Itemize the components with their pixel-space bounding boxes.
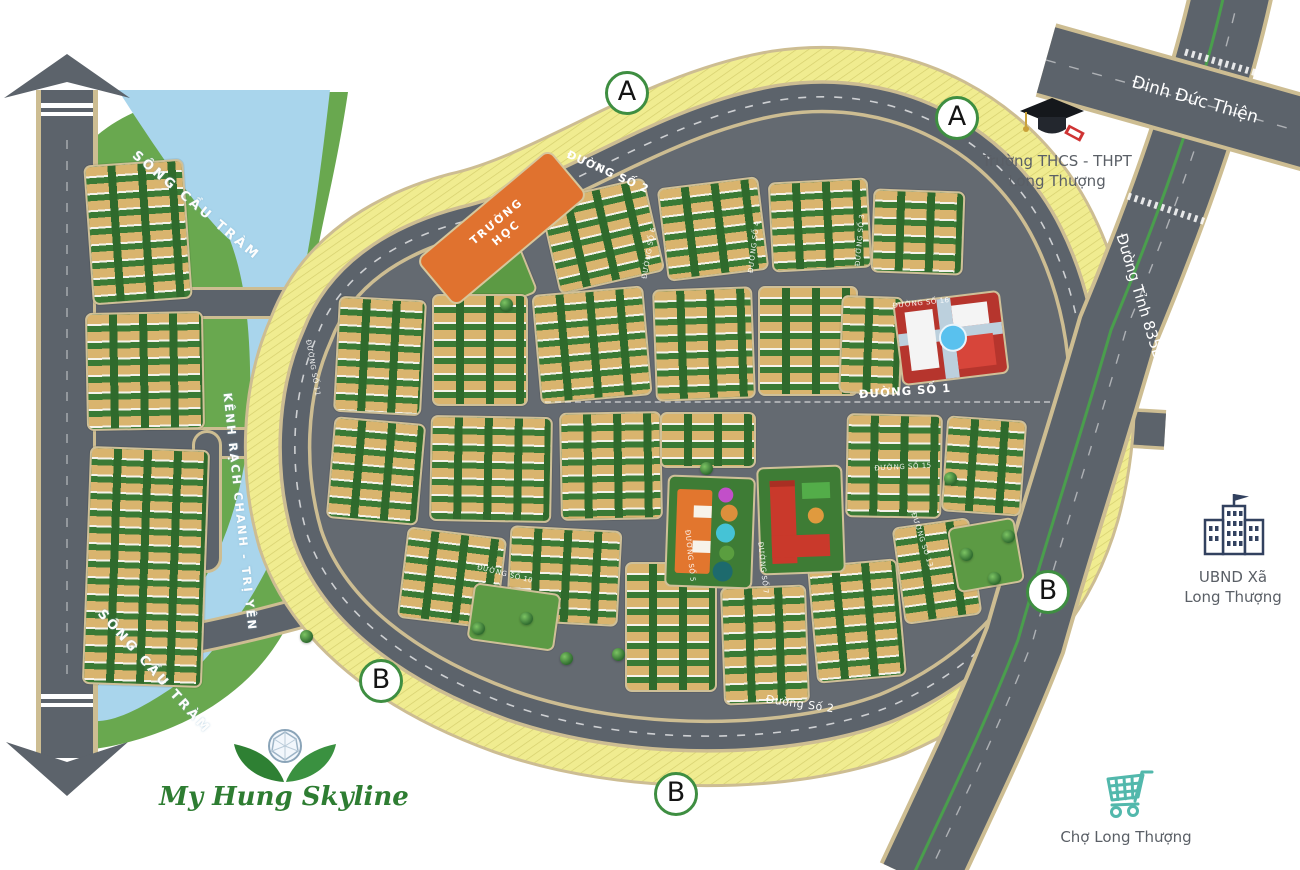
housing-block xyxy=(652,286,756,401)
school-caption: Trường THCS - THPT Long Thượng xyxy=(982,152,1132,191)
green-park-block xyxy=(947,517,1025,594)
tree-icon xyxy=(612,648,625,661)
housing-block xyxy=(429,415,553,523)
tree-icon xyxy=(520,612,533,625)
lotus-logo-icon xyxy=(226,722,344,784)
playground-dot xyxy=(719,545,735,561)
zone-marker-a: A xyxy=(935,96,979,140)
tree-icon xyxy=(560,652,573,665)
playground-dot xyxy=(716,524,736,544)
community-building-l xyxy=(756,465,846,576)
tree-icon xyxy=(944,472,957,485)
housing-block xyxy=(559,411,663,521)
housing-block xyxy=(720,585,810,706)
housing-block xyxy=(871,188,966,275)
ubnd-caption-line2: Long Thượng xyxy=(1184,588,1281,608)
map-canvas: TRƯỜNG HỌC Đinh Đức Thiện Đường Tỉnh 835… xyxy=(0,0,1300,870)
tree-icon xyxy=(1002,530,1015,543)
market-caption-text: Chợ Long Thượng xyxy=(1060,828,1191,848)
housing-block xyxy=(432,294,528,406)
shopping-cart-icon xyxy=(1094,766,1158,822)
tree-icon xyxy=(988,572,1001,585)
tree-icon xyxy=(300,630,313,643)
housing-block xyxy=(660,412,756,468)
playground-dot xyxy=(718,487,734,503)
green-roof xyxy=(801,482,829,500)
playground-dot xyxy=(720,504,738,522)
school-caption-line2: Long Thượng xyxy=(982,172,1132,192)
developer-logo-text: My Hung Skyline xyxy=(159,782,409,812)
playground-dot xyxy=(712,561,733,582)
orange-dot xyxy=(807,507,824,524)
school-caption-line1: Trường THCS - THPT xyxy=(982,152,1132,172)
market-caption: Chợ Long Thượng xyxy=(1060,828,1191,848)
housing-block xyxy=(531,285,652,404)
ubnd-building-icon xyxy=(1196,488,1272,560)
housing-block xyxy=(85,311,205,431)
l-building-wing xyxy=(772,534,830,559)
building-notch xyxy=(694,506,712,518)
housing-block xyxy=(326,416,427,526)
housing-block xyxy=(807,558,907,683)
zone-marker-a: A xyxy=(605,71,649,115)
housing-block xyxy=(333,296,427,416)
graduation-cap-icon xyxy=(1018,96,1090,148)
tree-icon xyxy=(700,462,713,475)
zone-marker-b: B xyxy=(359,659,403,703)
tree-icon xyxy=(472,622,485,635)
ubnd-caption-line1: UBND Xã xyxy=(1184,568,1281,588)
housing-block xyxy=(941,415,1028,516)
zone-marker-b: B xyxy=(654,772,698,816)
kindergarten-block xyxy=(664,474,756,589)
building-notch xyxy=(692,540,710,552)
ubnd-caption: UBND Xã Long Thượng xyxy=(1184,568,1281,607)
green-park-block xyxy=(466,582,561,652)
zone-marker-b: B xyxy=(1026,570,1070,614)
tree-icon xyxy=(960,548,973,561)
tree-icon xyxy=(500,298,513,311)
street-centerline xyxy=(545,401,1050,403)
building-roof-white xyxy=(905,309,940,371)
